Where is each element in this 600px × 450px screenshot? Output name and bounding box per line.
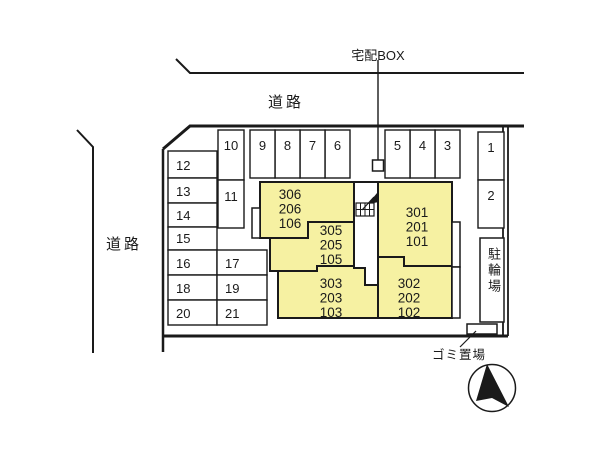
svg-text:305: 305 — [320, 223, 343, 238]
site-plan-drawing: 1 2 3 4 5 6 7 — [0, 0, 600, 450]
svg-text:8: 8 — [284, 138, 291, 153]
svg-text:9: 9 — [259, 138, 266, 153]
parking-spot-20: 20 — [168, 300, 217, 325]
garbage-area-label: ゴミ置場 — [414, 344, 504, 363]
unit-label-302: 302 202 102 — [398, 276, 421, 320]
svg-text:306: 306 — [279, 187, 302, 202]
svg-text:203: 203 — [320, 291, 343, 306]
svg-text:205: 205 — [320, 238, 343, 253]
svg-text:21: 21 — [225, 306, 239, 321]
svg-text:19: 19 — [225, 281, 239, 296]
unit-label-301: 301 201 101 — [406, 205, 429, 249]
svg-text:106: 106 — [279, 216, 302, 231]
site-plan: 1 2 3 4 5 6 7 — [0, 0, 600, 450]
parking-spot-12: 12 — [168, 151, 217, 178]
svg-text:3: 3 — [444, 138, 451, 153]
svg-text:13: 13 — [176, 184, 190, 199]
svg-text:201: 201 — [406, 220, 429, 235]
svg-text:11: 11 — [224, 189, 238, 204]
garbage-area-marker — [467, 324, 497, 334]
stairs-icon — [356, 193, 379, 216]
svg-text:17: 17 — [225, 256, 239, 271]
compass-north-icon — [469, 364, 516, 412]
svg-text:105: 105 — [320, 252, 343, 267]
svg-text:101: 101 — [406, 234, 429, 249]
parking-spot-7: 7 — [300, 130, 325, 178]
parking-spot-9: 9 — [250, 130, 275, 178]
svg-text:5: 5 — [394, 138, 401, 153]
parking-spot-19: 19 — [217, 275, 267, 300]
svg-text:20: 20 — [176, 306, 190, 321]
svg-text:15: 15 — [176, 231, 190, 246]
svg-text:10: 10 — [224, 138, 238, 153]
parking-spot-18: 18 — [168, 275, 217, 300]
parking-spot-14: 14 — [168, 203, 217, 227]
unit-label-303: 303 203 103 — [320, 276, 343, 320]
parking-spot-2: 2 — [478, 180, 504, 228]
parking-spot-21: 21 — [217, 300, 267, 325]
road-label-top: 道路 — [268, 91, 304, 112]
svg-text:6: 6 — [334, 138, 341, 153]
parking-spot-1: 1 — [478, 132, 504, 180]
svg-text:12: 12 — [176, 158, 190, 173]
svg-text:14: 14 — [176, 208, 190, 223]
parking-spot-13: 13 — [168, 178, 217, 203]
parking-spot-3: 3 — [435, 130, 460, 178]
svg-text:206: 206 — [279, 202, 302, 217]
delivery-box-icon — [373, 160, 384, 171]
bicycle-parking-label: 駐輪場 — [484, 247, 503, 295]
parking-spot-16: 16 — [168, 250, 217, 275]
parking-spot-4: 4 — [410, 130, 435, 178]
balcony-right-upper — [452, 222, 460, 267]
svg-text:4: 4 — [419, 138, 426, 153]
parking-spot-5: 5 — [385, 130, 410, 178]
parking-spot-11: 11 — [218, 180, 244, 228]
svg-text:18: 18 — [176, 281, 190, 296]
parking-spot-8: 8 — [275, 130, 300, 178]
svg-text:301: 301 — [406, 205, 429, 220]
balcony-right-lower — [452, 267, 460, 318]
svg-text:102: 102 — [398, 305, 421, 320]
unit-label-305: 305 205 105 — [320, 223, 343, 267]
parking-spot-6: 6 — [325, 130, 350, 178]
svg-text:202: 202 — [398, 291, 421, 306]
parking-spot-10: 10 — [218, 130, 244, 180]
road-label-left: 道路 — [106, 233, 142, 254]
svg-text:303: 303 — [320, 276, 343, 291]
svg-text:1: 1 — [487, 140, 494, 155]
unit-label-306: 306 206 106 — [279, 187, 302, 231]
parking-spot-15: 15 — [168, 227, 217, 250]
svg-text:16: 16 — [176, 256, 190, 271]
road-line-left — [77, 130, 93, 353]
svg-text:103: 103 — [320, 305, 343, 320]
delivery-box-label: 宅配BOX — [338, 45, 418, 64]
balcony-left — [252, 208, 260, 238]
parking-spot-17: 17 — [217, 250, 267, 275]
svg-text:2: 2 — [487, 188, 494, 203]
svg-text:7: 7 — [309, 138, 316, 153]
svg-text:302: 302 — [398, 276, 421, 291]
